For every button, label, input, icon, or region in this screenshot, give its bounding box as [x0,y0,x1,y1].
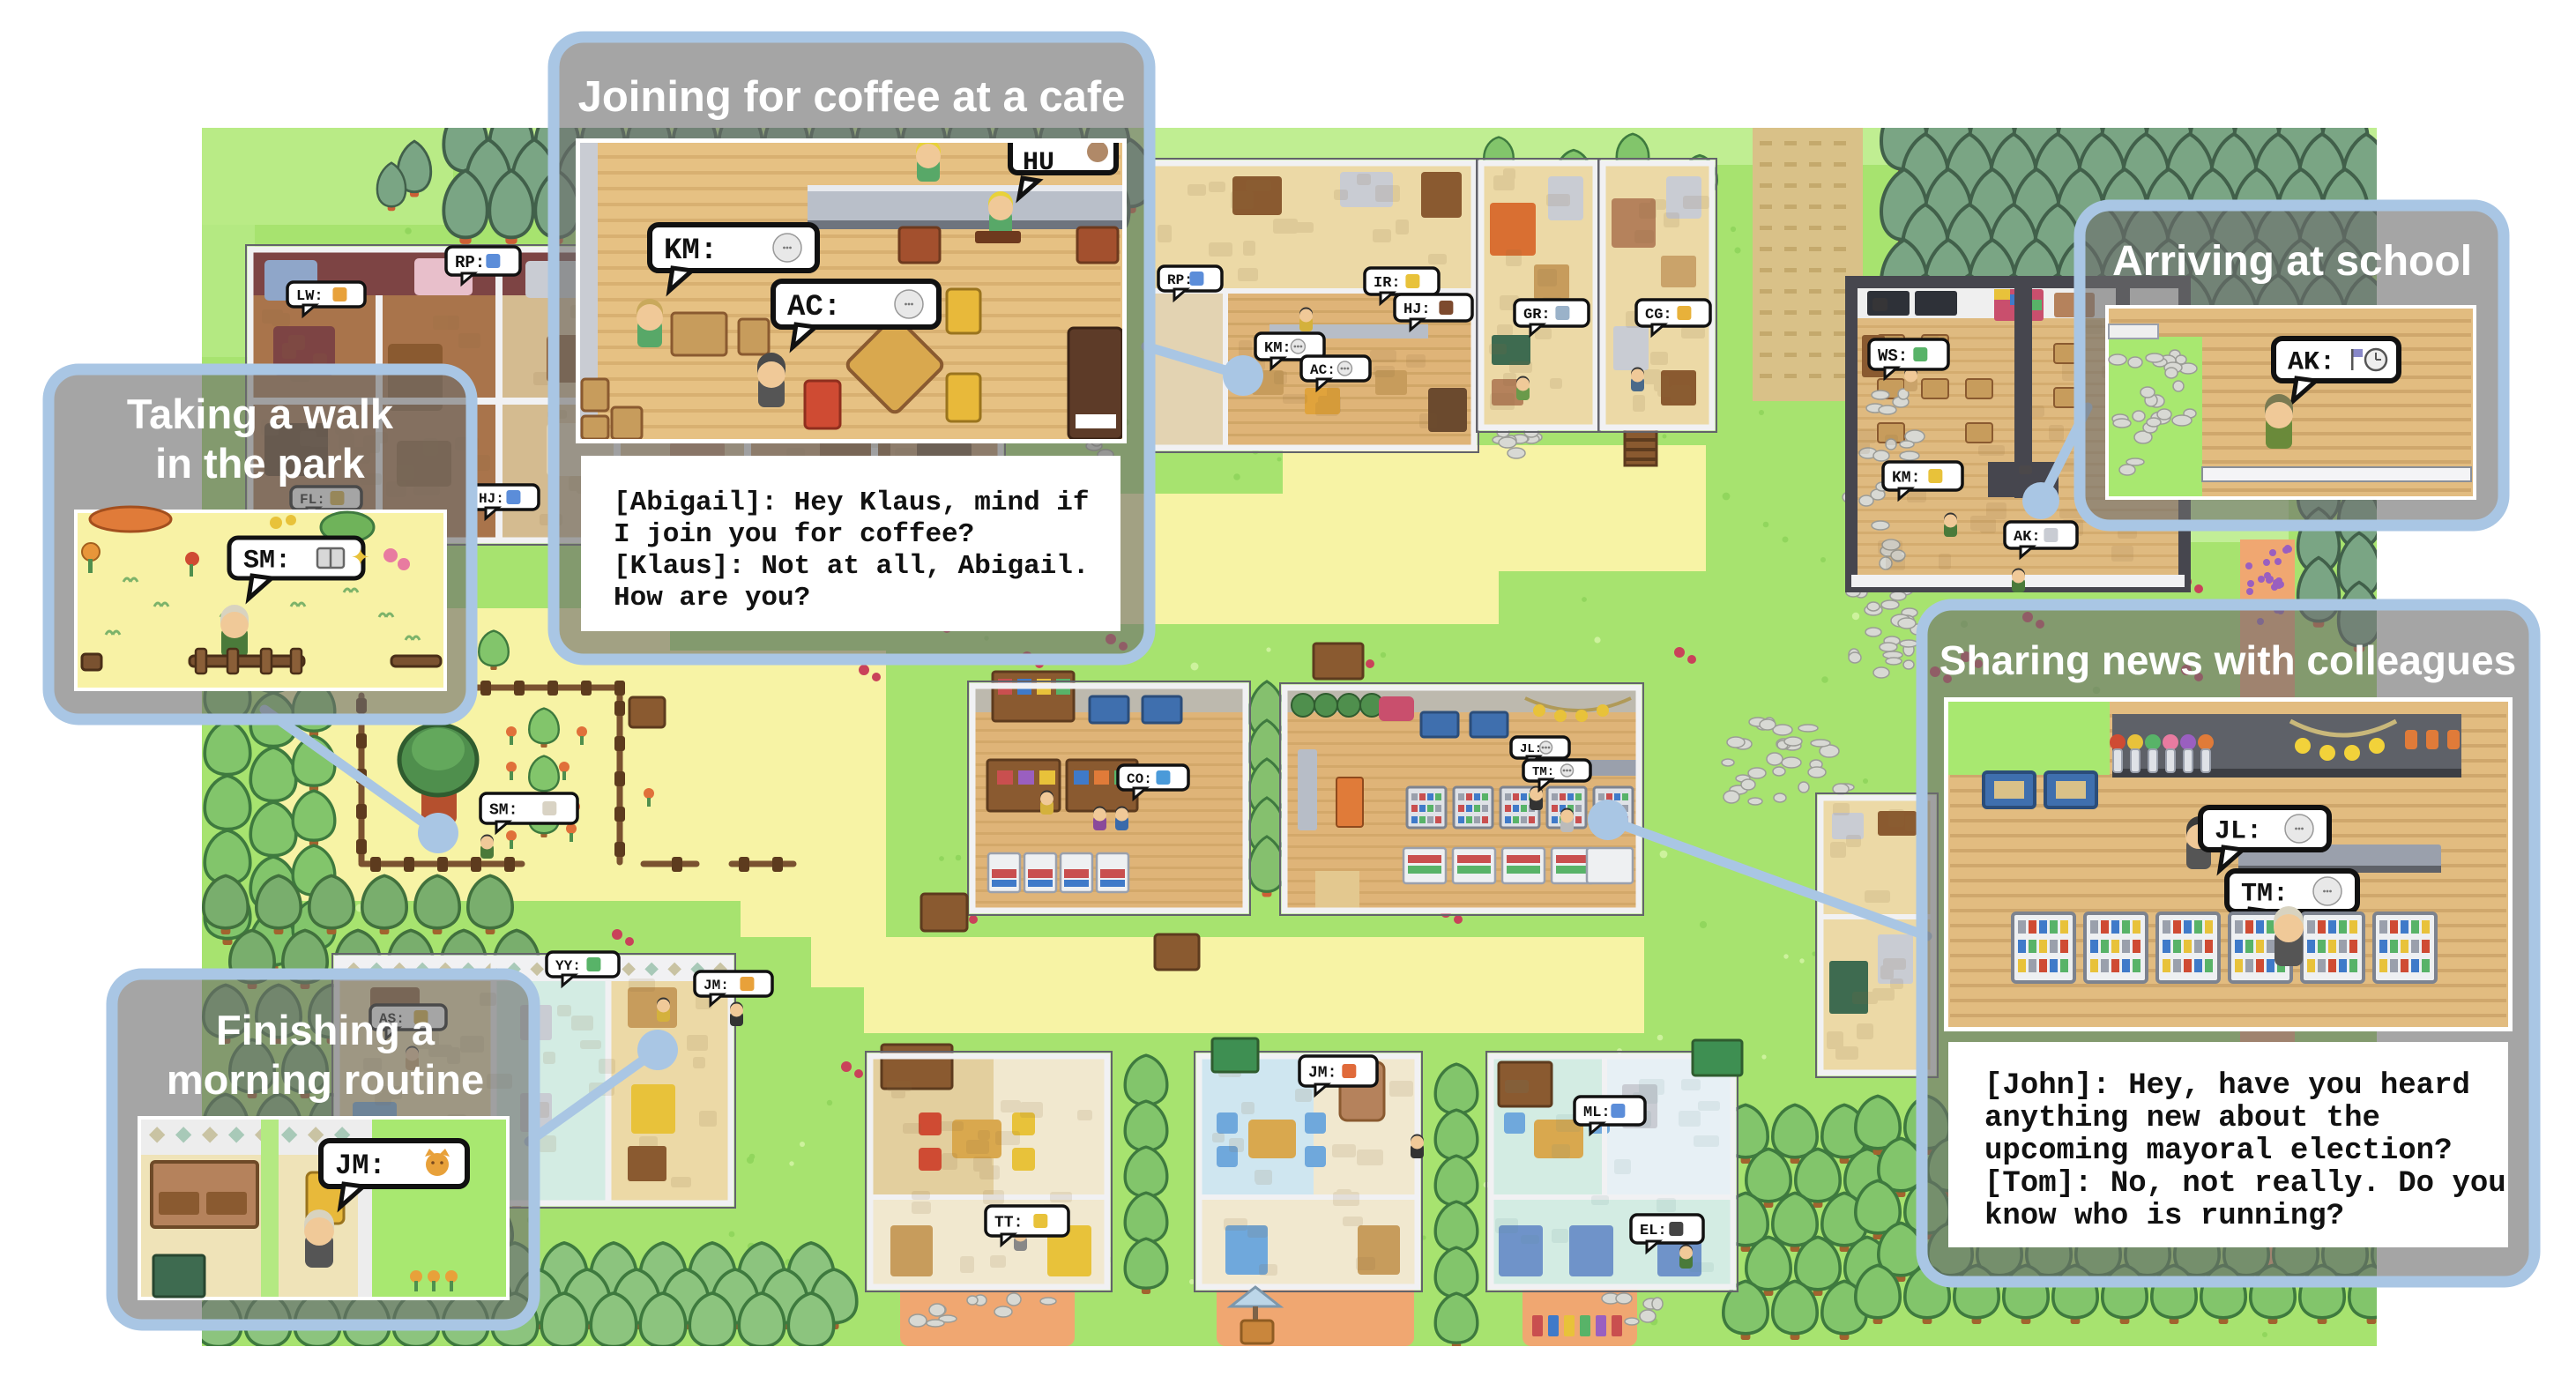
svg-text:anything new about the: anything new about the [1984,1102,2380,1135]
svg-text:JM:: JM: [335,1150,386,1182]
svg-text:KM:: KM: [664,234,718,268]
svg-text:in the park: in the park [155,440,366,487]
svg-text:EL:: EL: [1640,1223,1667,1239]
svg-text:✦: ✦ [351,544,370,570]
svg-text:HJ:: HJ: [479,491,504,507]
svg-text:HU: HU [1023,148,1054,178]
svg-text:YY:: YY: [555,958,581,974]
svg-text:AC:: AC: [1310,362,1336,378]
svg-text:JL:: JL: [1520,742,1542,756]
svg-text:IR:: IR: [1374,275,1401,292]
svg-text:HJ:: HJ: [1403,301,1431,318]
svg-text:AC:: AC: [787,291,841,324]
svg-text:ML:: ML: [1583,1105,1611,1121]
svg-text:TM:: TM: [2241,880,2289,910]
svg-text:TM:: TM: [1532,765,1554,779]
svg-text:JM:: JM: [704,978,729,993]
svg-text:RP:: RP: [455,253,485,272]
svg-text:Taking a walk: Taking a walk [127,391,394,437]
svg-text:morning routine: morning routine [167,1056,484,1103]
svg-text:AK:: AK: [2014,529,2041,546]
svg-text:JM:: JM: [1308,1064,1336,1082]
svg-text:TT:: TT: [994,1214,1023,1231]
svg-text:[Klaus]: Not at all, Abigail.: [Klaus]: Not at all, Abigail. [614,551,1090,582]
svg-text:[John]: Hey, have you heard: [John]: Hey, have you heard [1984,1069,2470,1103]
svg-text:Sharing news with colleagues: Sharing news with colleagues [1939,637,2516,683]
svg-text:SM:: SM: [243,547,291,577]
svg-text:CG:: CG: [1645,307,1672,324]
svg-text:know who is running?: know who is running? [1984,1200,2344,1233]
svg-text:Finishing a: Finishing a [216,1007,436,1053]
svg-text:KM:: KM: [1892,469,1920,487]
svg-text:RP:: RP: [1167,272,1193,288]
svg-text:Joining for coffee at a cafe: Joining for coffee at a cafe [578,73,1126,121]
svg-text:WS:: WS: [1878,346,1908,366]
svg-text:KM:: KM: [1264,340,1292,357]
svg-text:How are you?: How are you? [614,583,810,614]
svg-text:Arriving at school: Arriving at school [2112,238,2472,285]
svg-text:AK:: AK: [2288,348,2335,378]
svg-text:LW:: LW: [296,288,324,305]
svg-text:CO:: CO: [1127,771,1152,787]
svg-text:[Abigail]: Hey Klaus, mind if: [Abigail]: Hey Klaus, mind if [614,487,1090,518]
svg-text:upcoming mayoral election?: upcoming mayoral election? [1984,1135,2453,1168]
svg-text:JL:: JL: [2215,817,2262,847]
svg-text:[Tom]: No, not really. Do you: [Tom]: No, not really. Do you [1984,1167,2506,1201]
svg-text:I join you for coffee?: I join you for coffee? [614,519,974,550]
svg-text:GR:: GR: [1523,307,1551,324]
svg-text:SM:: SM: [489,801,517,819]
